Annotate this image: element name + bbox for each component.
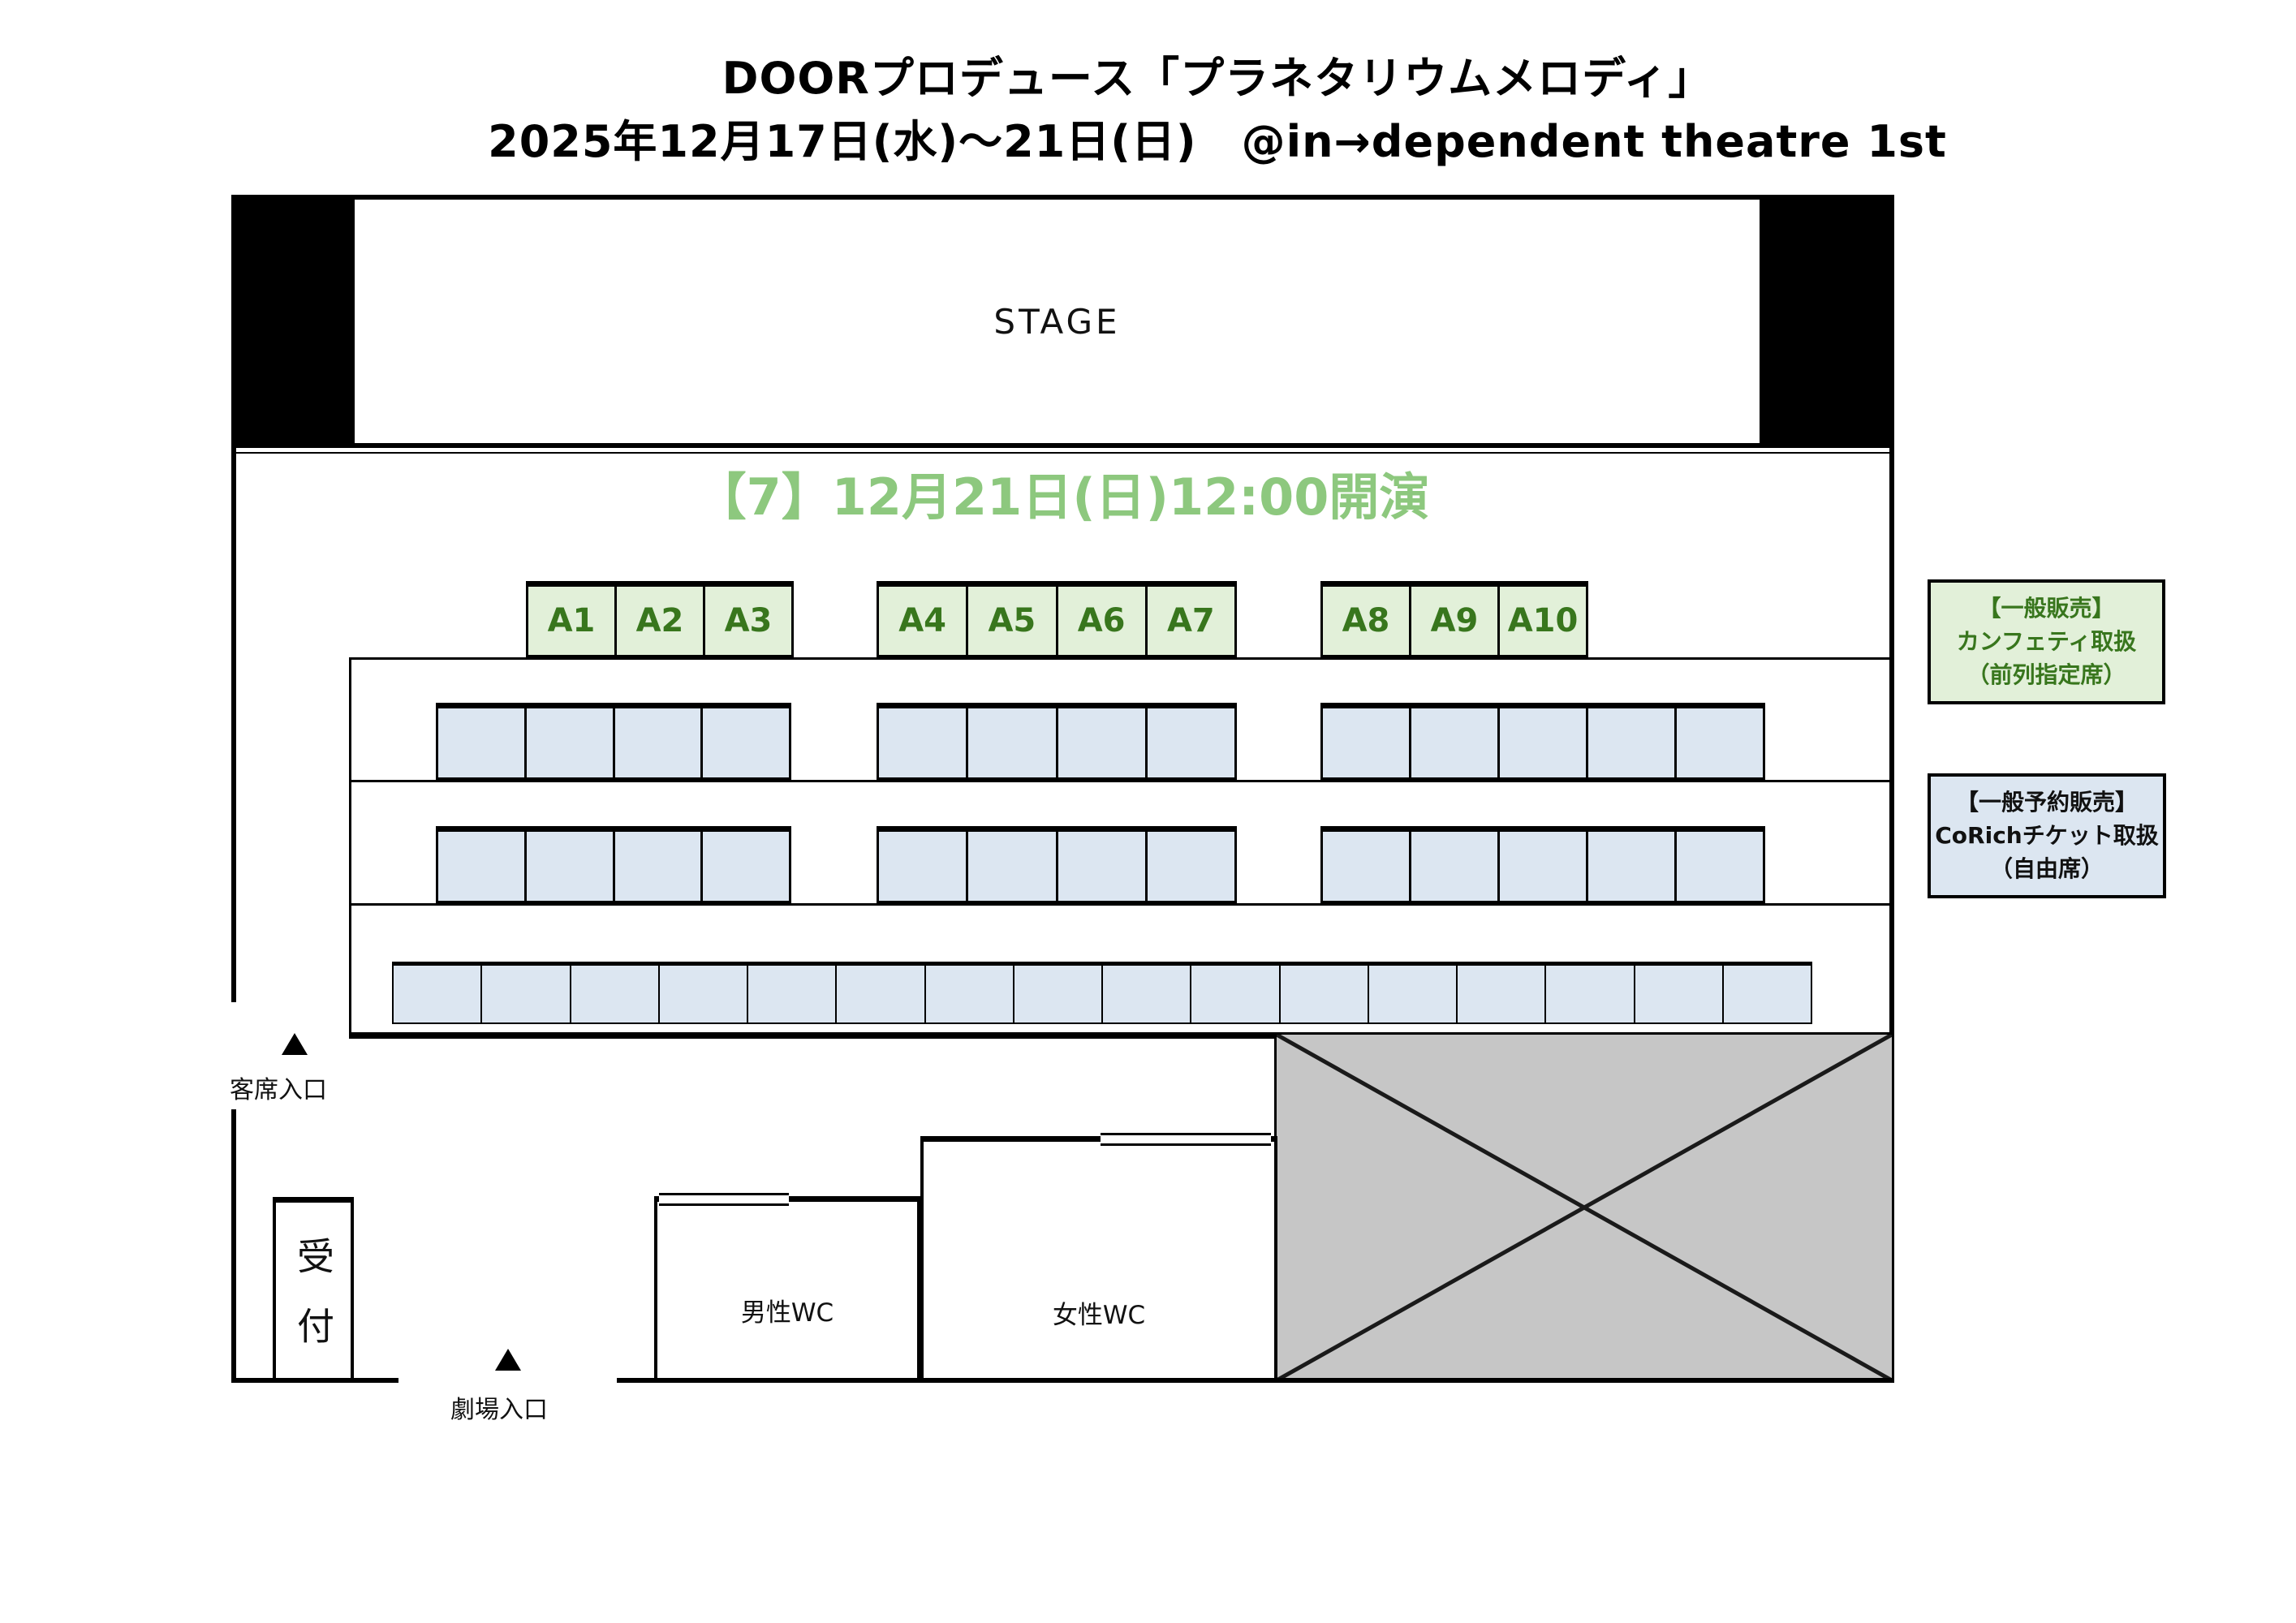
seat <box>1013 966 1101 1022</box>
seat-group <box>436 826 791 903</box>
seat <box>879 708 966 777</box>
womens-wc-box: 女性WC <box>920 1136 1277 1378</box>
legend-general-line-1: 【一般販売】 <box>1934 596 2159 621</box>
seating-chart-page: DOORプロデュース「プラネタリウムメロディ」 2025年12月17日(水)〜2… <box>0 0 2296 1623</box>
seat <box>1722 966 1811 1022</box>
seat <box>1497 832 1586 901</box>
theater-entrance-triangle-icon <box>495 1349 521 1371</box>
womens-wc-label: 女性WC <box>924 1189 1274 1331</box>
seat-a5: A5 <box>966 587 1055 655</box>
seat <box>524 832 613 901</box>
legend-general-sale: 【一般販売】 カンフェティ取扱 （前列指定席） <box>1928 579 2165 704</box>
seat <box>658 966 747 1022</box>
seat-group <box>877 703 1237 780</box>
blocked-x-icon <box>1277 1035 1892 1380</box>
seat-a1: A1 <box>528 587 614 655</box>
seat <box>1056 832 1145 901</box>
seat-group <box>877 826 1237 903</box>
mens-wc-label: 男性WC <box>657 1251 917 1328</box>
audience-entrance-triangle-icon <box>282 1033 308 1055</box>
seat <box>1145 832 1234 901</box>
mens-wc-door-marker <box>659 1193 789 1206</box>
seat <box>966 708 1055 777</box>
audience-entrance-label: 客席入口 <box>230 1070 376 1105</box>
seat <box>613 832 701 901</box>
front-row-seat-group: A8A9A10 <box>1320 581 1588 657</box>
seat <box>1674 708 1763 777</box>
seat <box>438 832 524 901</box>
seat-a4: A4 <box>879 587 966 655</box>
seat <box>1368 966 1456 1022</box>
legend-reserve-line-2: CoRichチケット取扱 <box>1934 824 2160 848</box>
seat-a2: A2 <box>614 587 703 655</box>
seat <box>1409 708 1497 777</box>
seat <box>1409 832 1497 901</box>
seat <box>1586 832 1674 901</box>
bottom-wall-right-segment <box>617 1378 1894 1383</box>
legend-reserve-line-1: 【一般予約販売】 <box>1934 790 2160 815</box>
legend-general-line-3: （前列指定席） <box>1934 663 2159 687</box>
seat-a3: A3 <box>703 587 791 655</box>
seat <box>966 832 1055 901</box>
seat <box>480 966 569 1022</box>
legend-reserve-line-3: （自由席） <box>1934 857 2160 881</box>
seat <box>1101 966 1190 1022</box>
blocked-area <box>1274 1032 1894 1383</box>
seat <box>1674 832 1763 901</box>
seat <box>1323 832 1409 901</box>
bottom-wall-left-segment <box>231 1378 398 1383</box>
seat <box>1056 708 1145 777</box>
mens-wc-box: 男性WC <box>654 1196 920 1378</box>
womens-wc-door-marker <box>1101 1133 1271 1146</box>
seat <box>524 708 613 777</box>
legend-reserve-sale: 【一般予約販売】 CoRichチケット取扱 （自由席） <box>1928 773 2166 898</box>
seat <box>1279 966 1368 1022</box>
seat <box>1586 708 1674 777</box>
seat-a7: A7 <box>1145 587 1234 655</box>
seat <box>700 832 789 901</box>
seat <box>570 966 658 1022</box>
seat <box>924 966 1013 1022</box>
seat <box>613 708 701 777</box>
theater-entrance-label: 劇場入口 <box>450 1389 613 1425</box>
seat <box>1145 708 1234 777</box>
seat <box>1456 966 1544 1022</box>
legend-general-line-2: カンフェティ取扱 <box>1934 630 2159 654</box>
seat <box>394 966 480 1022</box>
seat-a8: A8 <box>1323 587 1409 655</box>
reception-box: 受付 <box>273 1197 354 1378</box>
seat-a9: A9 <box>1409 587 1497 655</box>
seat-group <box>392 962 1812 1024</box>
front-row-seat-group: A4A5A6A7 <box>877 581 1237 657</box>
seat <box>1323 708 1409 777</box>
seat-group <box>436 703 791 780</box>
seat <box>700 708 789 777</box>
seat-a10: A10 <box>1497 587 1586 655</box>
seat-group <box>1320 703 1765 780</box>
seat <box>1634 966 1722 1022</box>
seat <box>1190 966 1278 1022</box>
seat <box>1544 966 1633 1022</box>
reception-label: 受付 <box>286 1237 340 1376</box>
seat-group <box>1320 826 1765 903</box>
seat <box>747 966 835 1022</box>
seat <box>879 832 966 901</box>
front-row-seat-group: A1A2A3 <box>526 581 794 657</box>
seat <box>1497 708 1586 777</box>
seat <box>438 708 524 777</box>
seat <box>835 966 924 1022</box>
seat-a6: A6 <box>1056 587 1145 655</box>
